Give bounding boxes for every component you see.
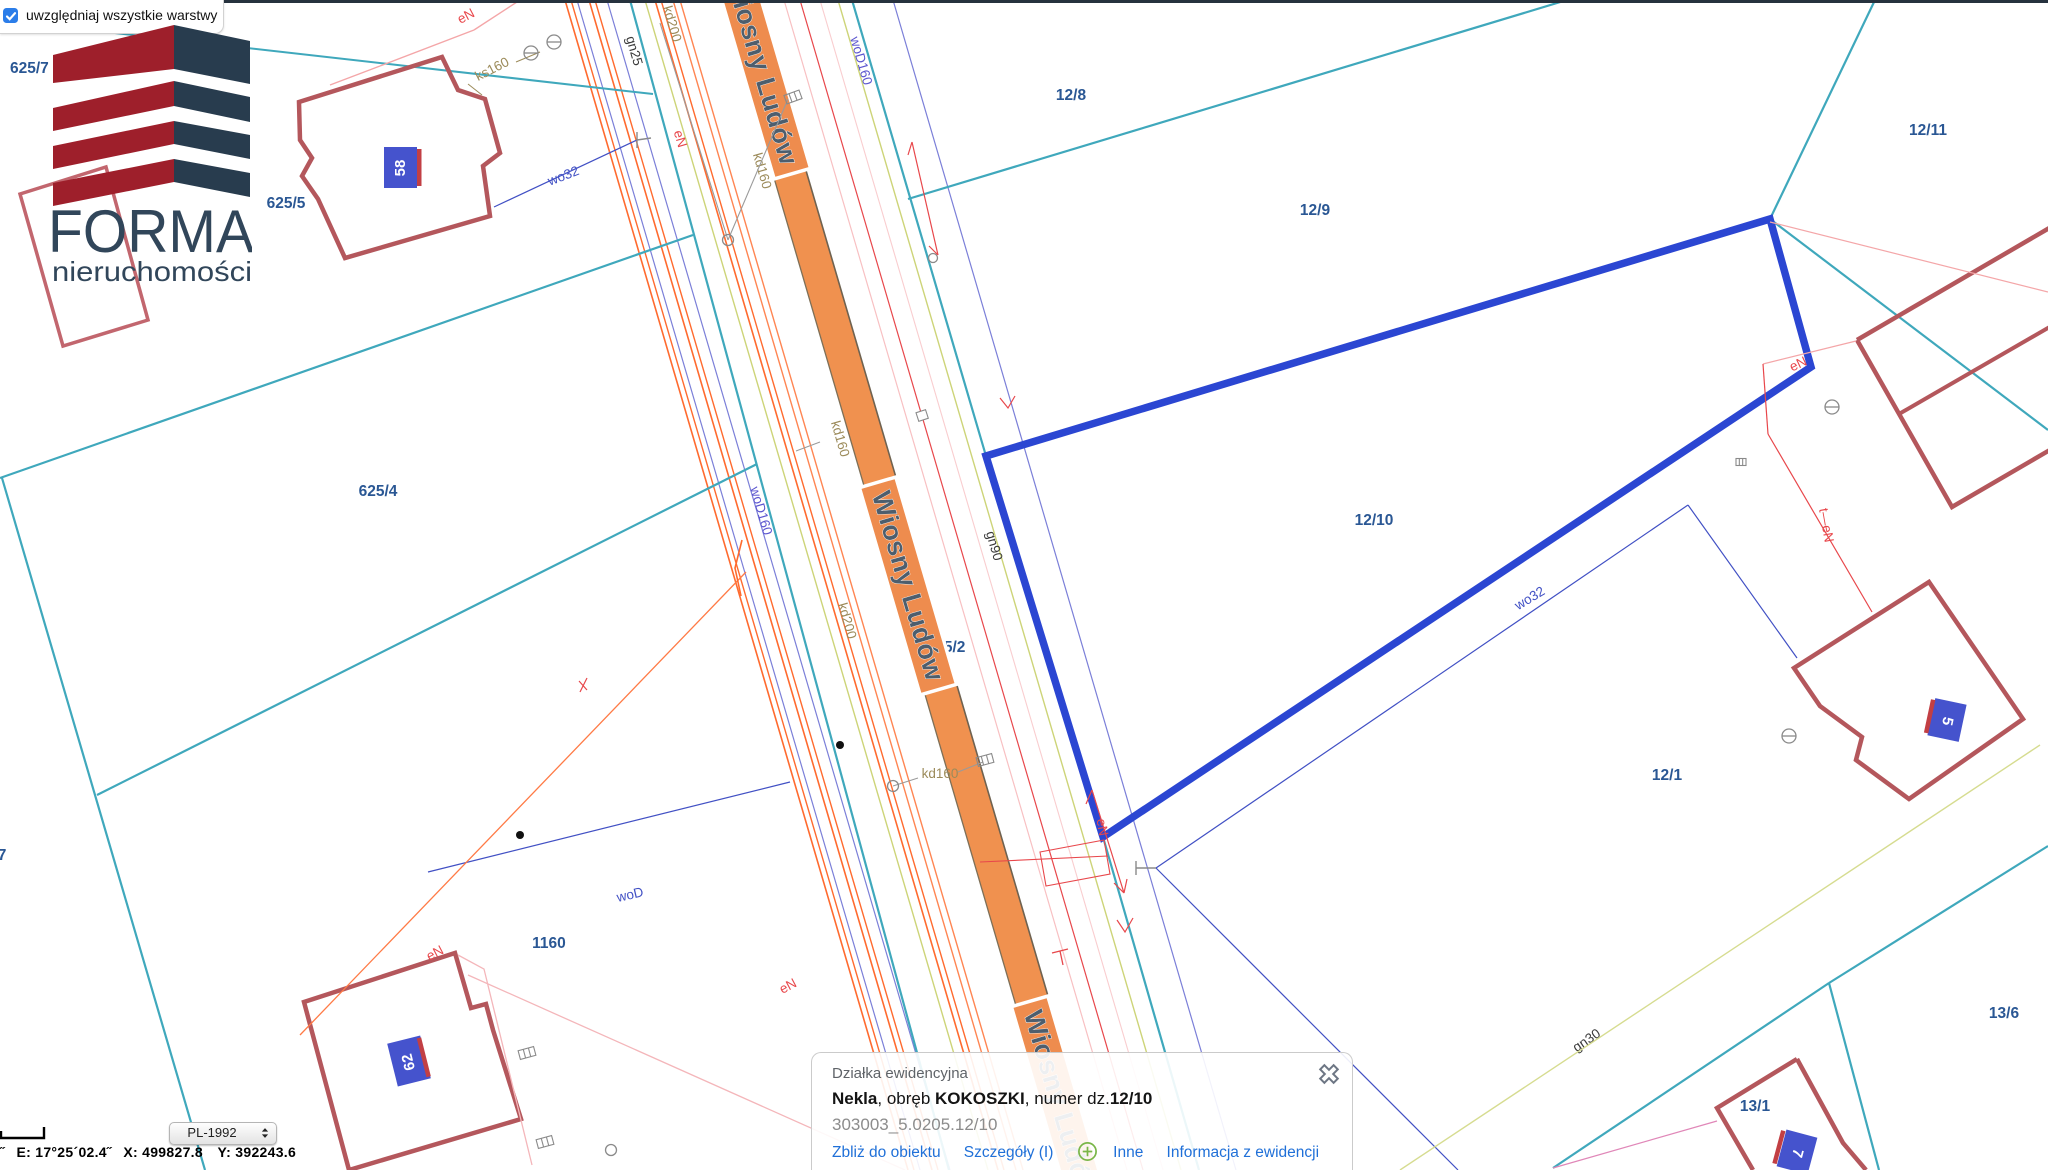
svg-text:625/4: 625/4: [359, 483, 398, 500]
svg-text:13/1: 13/1: [1740, 1098, 1771, 1115]
svg-text:12/1: 12/1: [1652, 767, 1683, 784]
svg-text:12/9: 12/9: [1300, 202, 1331, 219]
svg-text:12/11: 12/11: [1909, 122, 1947, 139]
svg-text:58: 58: [392, 160, 409, 177]
svg-text:12/10: 12/10: [1355, 512, 1394, 529]
svg-text:13/6: 13/6: [1989, 1005, 2020, 1022]
svg-text:1160: 1160: [532, 935, 566, 952]
svg-text:eN: eN: [1094, 817, 1112, 837]
svg-text:FORMA: FORMA: [52, 198, 252, 265]
svg-text:12/8: 12/8: [1056, 87, 1087, 104]
svg-text:nieruchomości: nieruchomości: [52, 256, 252, 284]
svg-text:625/5: 625/5: [267, 195, 306, 212]
svg-text:7: 7: [0, 847, 6, 864]
svg-text:kd160: kd160: [922, 766, 959, 781]
